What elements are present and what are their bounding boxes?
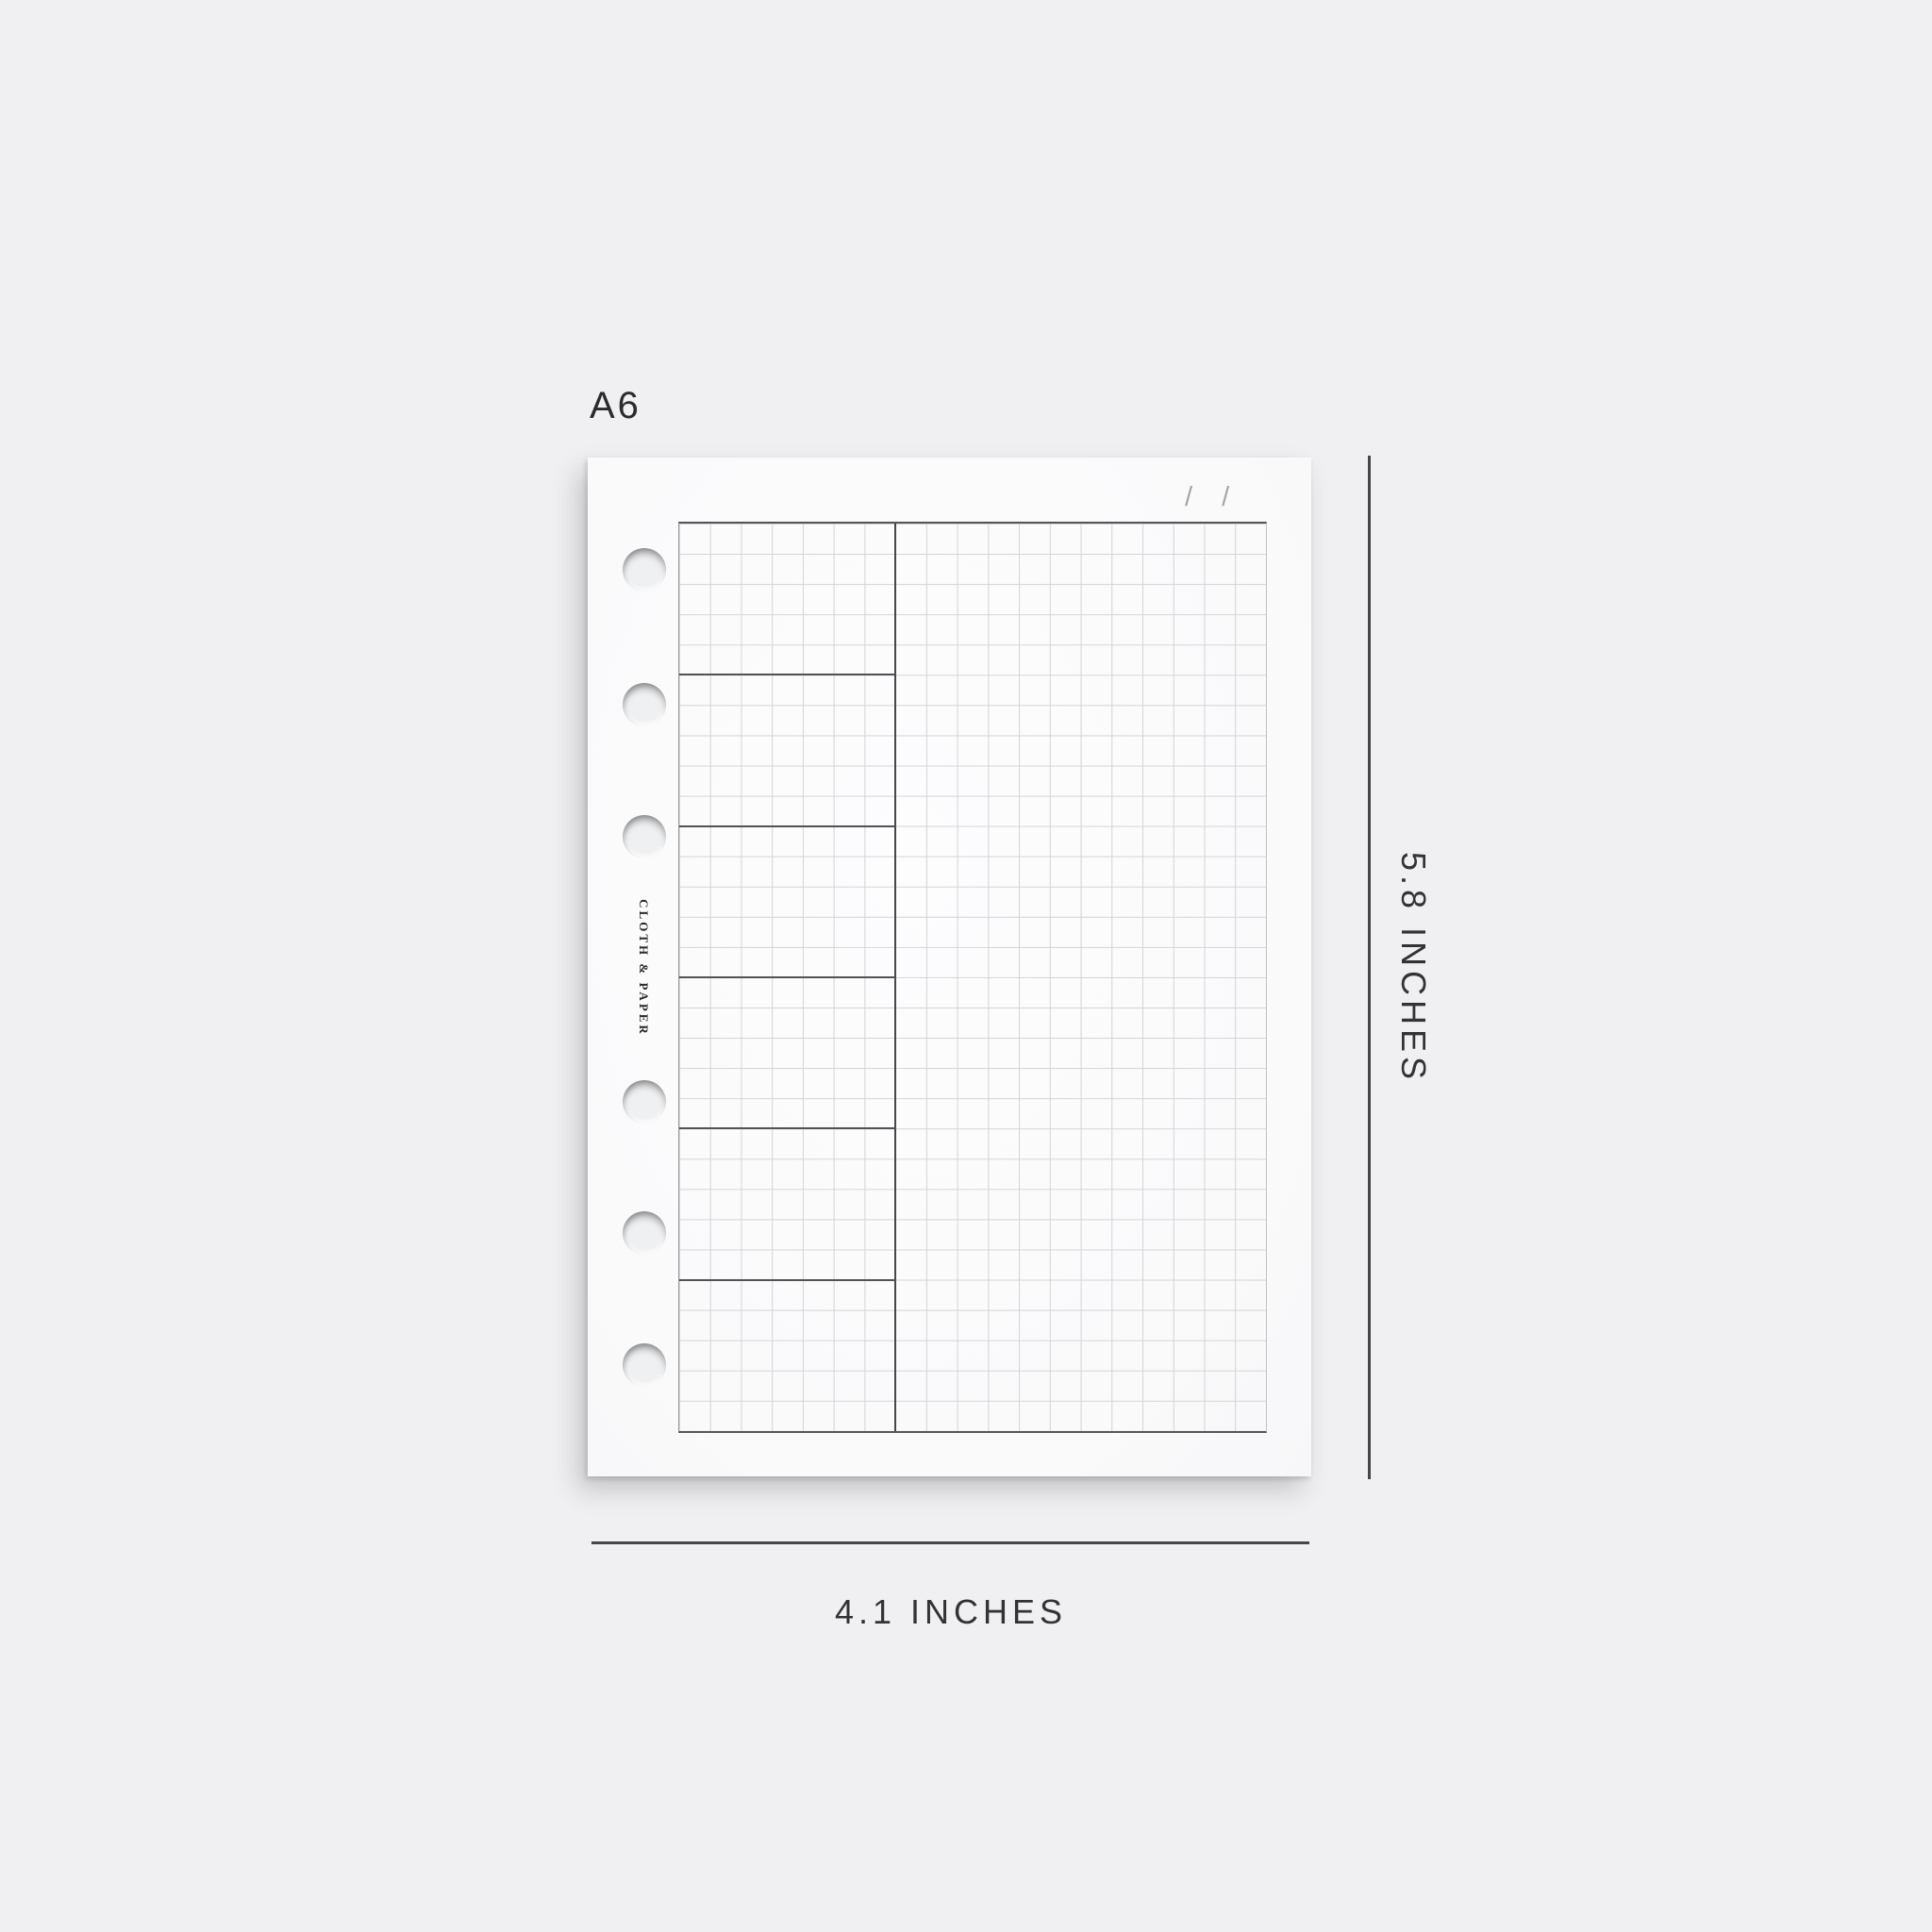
section-divider-line [679, 1279, 895, 1281]
binder-hole [623, 548, 666, 591]
date-slash: / [1185, 482, 1192, 513]
height-dimension-line [1368, 456, 1371, 1479]
brand-vertical-text: CLOTH & PAPER [636, 899, 651, 1037]
binder-hole [623, 1080, 666, 1124]
mockup-canvas: A6 CLOTH & PAPER / / 5.8 INCHES 4.1 INCH… [0, 0, 1932, 1932]
grid-paper [678, 522, 1267, 1433]
binder-hole [623, 1343, 666, 1387]
date-field: / / [1185, 482, 1229, 513]
binder-hole [623, 815, 666, 858]
binder-hole [623, 1211, 666, 1255]
section-divider-line [679, 825, 895, 827]
section-divider-line [679, 1127, 895, 1129]
section-divider-line [679, 976, 895, 978]
date-slash: / [1222, 482, 1229, 513]
height-dimension-label: 5.8 INCHES [1393, 852, 1433, 1084]
binder-hole [623, 683, 666, 726]
planner-page: CLOTH & PAPER / / [588, 458, 1311, 1476]
size-label: A6 [590, 385, 641, 427]
width-dimension-line [591, 1541, 1309, 1544]
width-dimension-label: 4.1 INCHES [835, 1592, 1067, 1632]
section-divider-line [679, 674, 895, 675]
